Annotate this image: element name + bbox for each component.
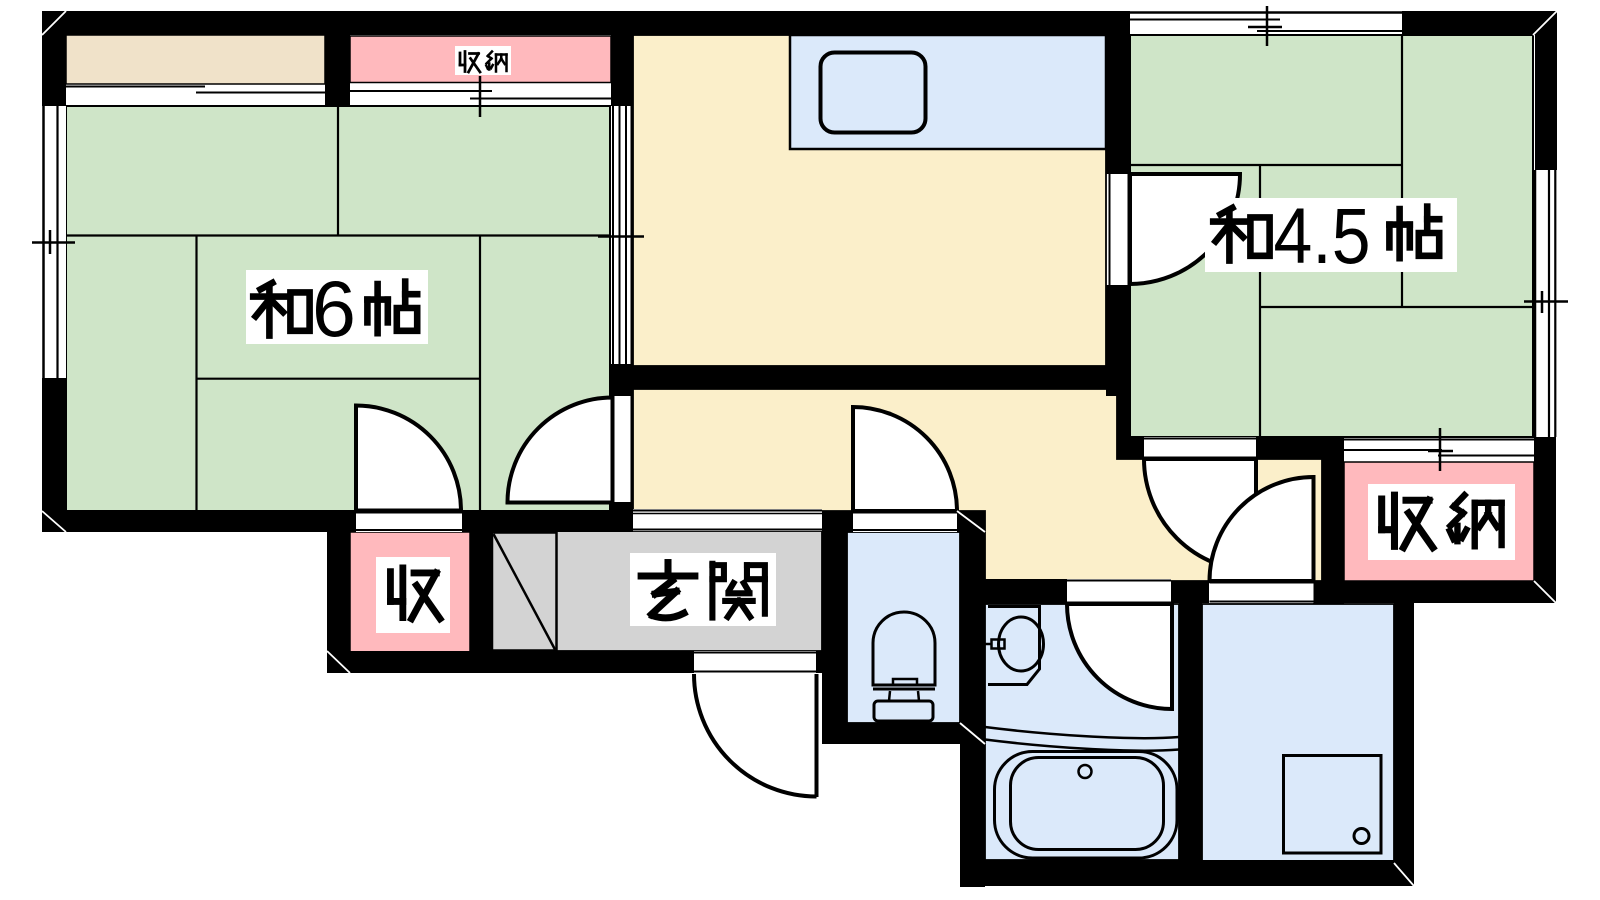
svg-text:6: 6	[312, 264, 356, 353]
svg-text:4.5: 4.5	[1274, 191, 1371, 280]
